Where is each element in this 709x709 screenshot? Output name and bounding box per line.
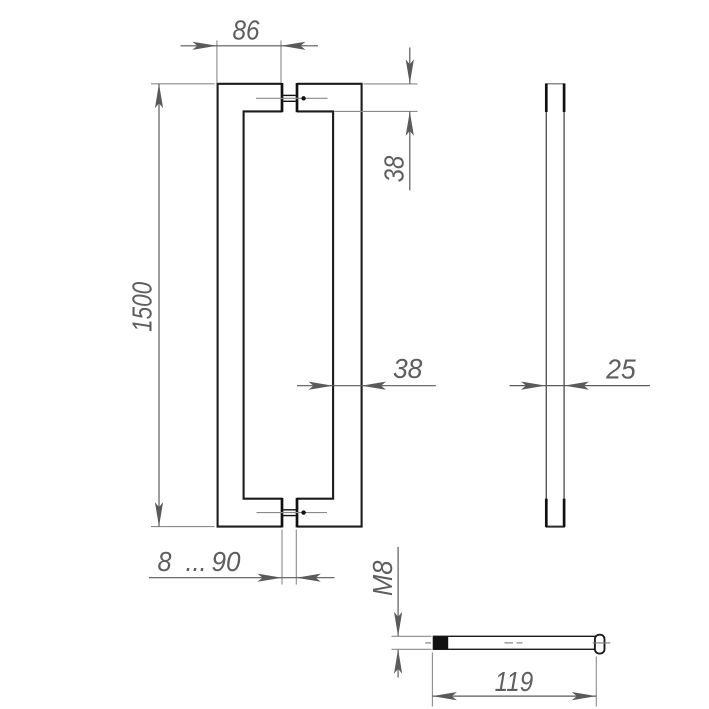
svg-text:119: 119 [495,666,534,697]
svg-text:M8: M8 [367,560,398,596]
svg-text:25: 25 [605,353,636,384]
svg-text:38: 38 [393,353,423,384]
svg-text:8: 8 [158,546,172,577]
svg-text:...: ... [186,546,207,577]
svg-text:1500: 1500 [127,282,158,332]
svg-text:86: 86 [233,15,260,46]
svg-text:90: 90 [212,546,241,577]
svg-text:38: 38 [379,155,410,182]
